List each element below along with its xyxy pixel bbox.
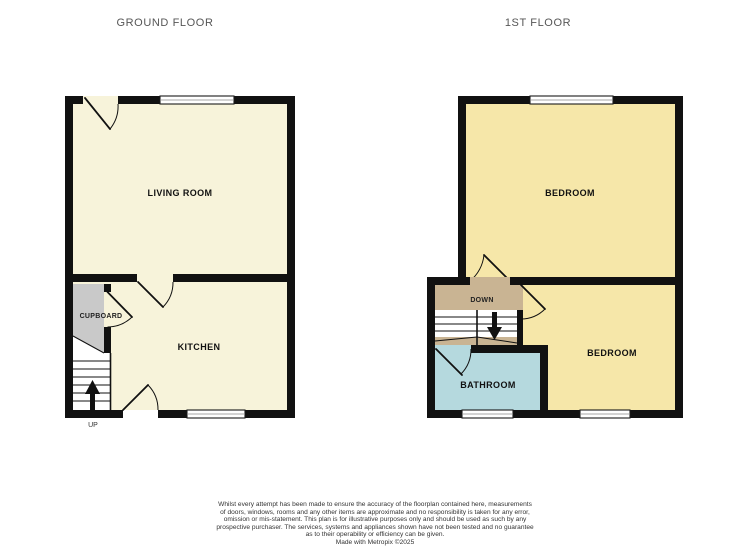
bedroom-back-window	[580, 410, 630, 418]
disclaimer-line: omission or mis-statement. This plan is …	[0, 516, 750, 524]
ground-floor-plan: LIVING ROOM KITCHEN CUPBOARD UP	[65, 96, 295, 429]
down-arrow-shaft	[492, 312, 497, 328]
disclaimer-text: Whilst every attempt has been made to en…	[0, 501, 750, 547]
back-door-opening	[123, 410, 158, 418]
cupboard-wall-stub	[104, 284, 111, 292]
first-floor-plan: BEDROOM BEDROOM BATHROOM DOWN	[427, 96, 683, 418]
disclaimer-line: prospective purchaser. The services, sys…	[0, 524, 750, 532]
stairs-down-label: DOWN	[470, 297, 493, 304]
floorplan-drawing: GROUND FLOOR 1ST FLOOR	[0, 0, 750, 551]
bedroom-front-door-opening	[470, 277, 510, 285]
kitchen-door-opening	[137, 274, 173, 282]
kitchen-label: KITCHEN	[178, 342, 221, 352]
bedroom-back-door-opening	[517, 285, 523, 310]
stairs-up-label: UP	[88, 422, 98, 429]
disclaimer-line: as to their operability or efficiency ca…	[0, 531, 750, 539]
cupboard-side-wall	[104, 327, 111, 353]
bedroom-front-window	[530, 96, 613, 104]
bathroom-label: BATHROOM	[460, 380, 516, 390]
up-arrow-shaft	[90, 393, 95, 410]
bedroom-back-label: BEDROOM	[587, 348, 637, 358]
kitchen-window	[187, 410, 245, 418]
bathroom-side-wall	[540, 345, 548, 418]
bathroom-door-opening	[435, 345, 471, 353]
living-room-window	[160, 96, 234, 104]
bathroom-window	[462, 410, 513, 418]
floorplan-canvas: GROUND FLOOR 1ST FLOOR	[0, 0, 750, 551]
ground-interior-wall	[73, 274, 287, 282]
cupboard-label: CUPBOARD	[80, 313, 123, 320]
disclaimer-line: of doors, windows, rooms and any other i…	[0, 509, 750, 517]
disclaimer-line: Whilst every attempt has been made to en…	[0, 501, 750, 509]
ground-floor-title: GROUND FLOOR	[116, 17, 213, 29]
living-room-label: LIVING ROOM	[148, 188, 213, 198]
first-staircase	[435, 310, 517, 345]
bedroom-front-label: BEDROOM	[545, 188, 595, 198]
disclaimer-credit: Made with Metropix ©2025	[0, 539, 750, 547]
first-floor-title: 1ST FLOOR	[505, 17, 571, 29]
